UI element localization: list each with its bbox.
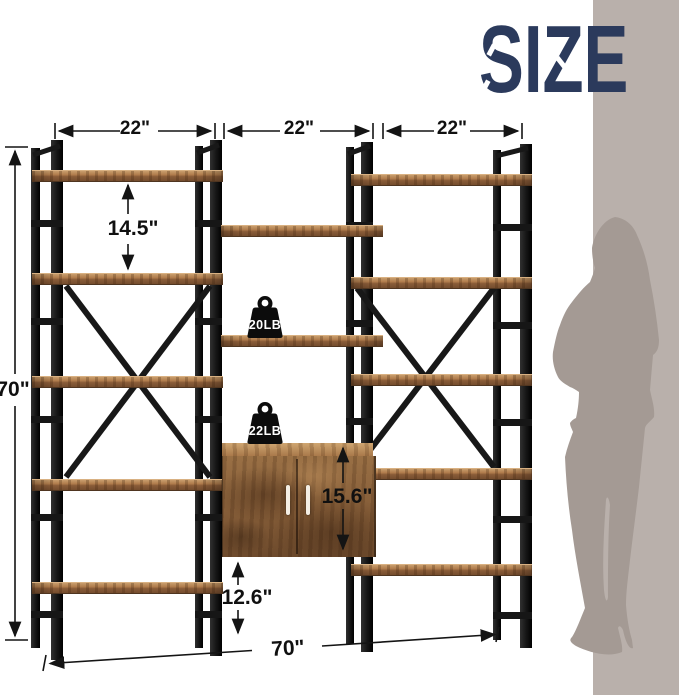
dim-overall-height: 70": [0, 378, 30, 402]
dim-left-width: 22": [120, 118, 150, 140]
dimension-lines: [0, 0, 679, 695]
dim-right-width: 22": [437, 118, 467, 140]
dim-shelf-spacing: 14.5": [108, 217, 159, 241]
dim-cabinet-height: 15.6": [322, 485, 373, 509]
dim-under-cabinet-clearance: 12.6": [222, 586, 273, 610]
dim-middle-width: 22": [284, 118, 314, 140]
product-size-diagram: SIZE: [0, 0, 679, 695]
dim-overall-width: 70": [271, 636, 306, 662]
